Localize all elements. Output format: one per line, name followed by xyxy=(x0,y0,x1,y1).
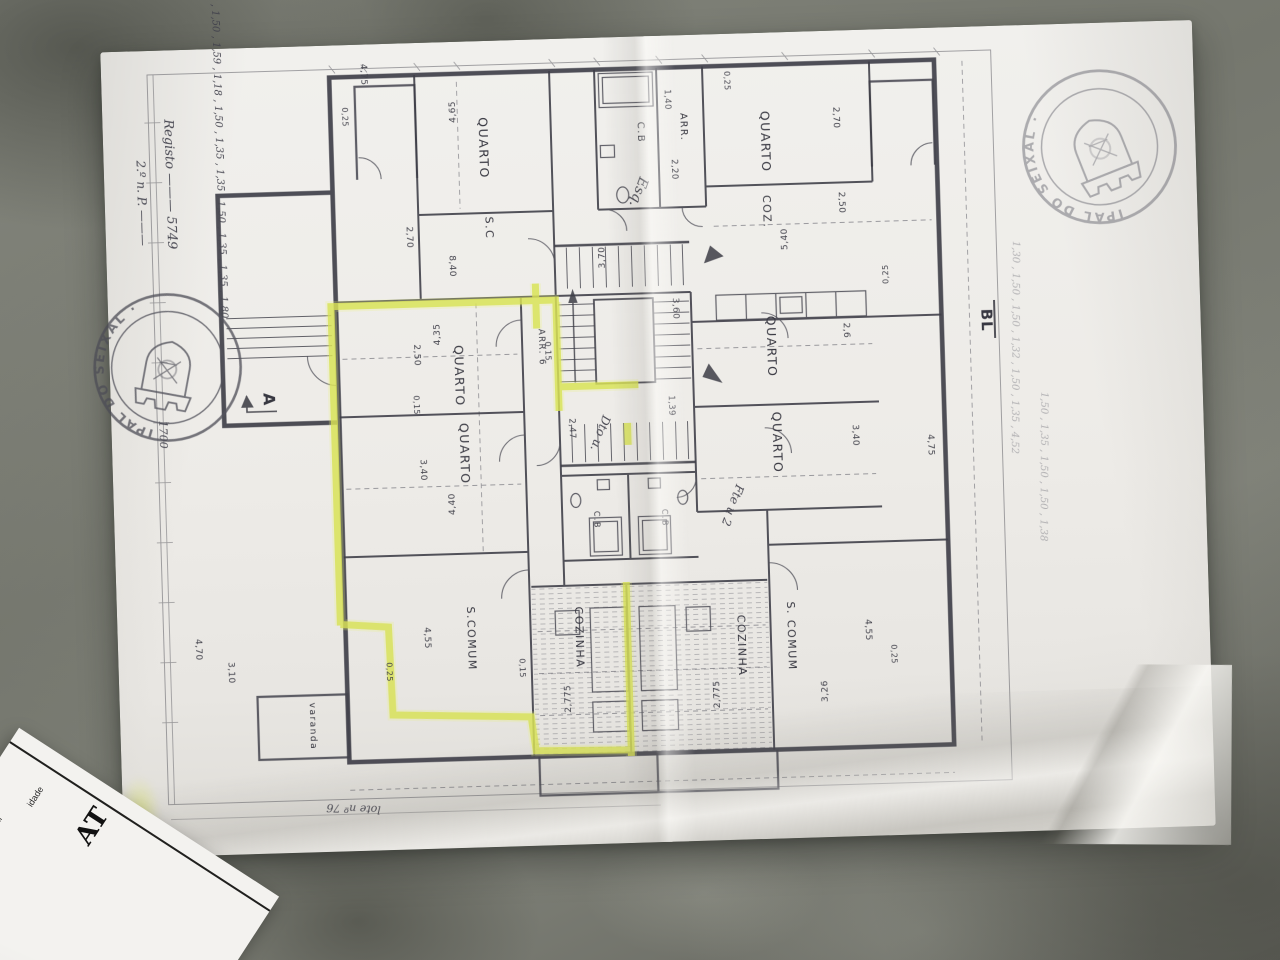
label-dim: 4,65 xyxy=(448,101,459,123)
door-arcs xyxy=(302,141,946,605)
label-dim: 0,25 xyxy=(340,107,350,127)
label-dim: 0,25 xyxy=(889,644,899,664)
label-marker: A xyxy=(259,393,278,407)
label-dim: 0,25 xyxy=(881,264,891,284)
label-room: C.B xyxy=(660,509,670,527)
label-dim: 4,40 xyxy=(448,493,459,515)
stair-direction-arrow xyxy=(567,246,726,387)
blueprint-paper: QUARTOS.CC.BARR.QUARTOCOZ.QUARTOQUARTOQU… xyxy=(100,20,1215,858)
label-hand: 1700 xyxy=(156,420,170,448)
label-dim: 3,40 xyxy=(850,424,861,446)
label-dim: 4,55 xyxy=(421,627,432,649)
label-room: varanda xyxy=(307,702,318,750)
municipal-crest-icon xyxy=(133,337,200,414)
label-room: C.B xyxy=(635,121,647,143)
label-hand: Esq. xyxy=(626,174,652,209)
label-dim: 2,47 xyxy=(566,418,577,439)
label-dim: 1,40 xyxy=(662,89,673,110)
label-dim: 2,50 xyxy=(836,192,847,214)
label-hand: Registo ——— 5749 xyxy=(160,118,179,249)
label-dim: 0,25 xyxy=(722,71,732,91)
label-room: COZINHA xyxy=(572,606,587,668)
label-hand: Dto u. xyxy=(588,412,614,453)
label-dim: 3,26 xyxy=(820,680,831,702)
floor-plan-drawing: QUARTOS.CC.BARR.QUARTOCOZ.QUARTOQUARTOQU… xyxy=(119,34,1156,846)
label-room: QUARTO xyxy=(763,315,780,377)
label-room: QUARTO xyxy=(769,411,786,473)
label-dim: 4,75 xyxy=(925,434,936,456)
label-dim: 2,6 xyxy=(841,322,851,338)
floor-background: QUARTOS.CC.BARR.QUARTOCOZ.QUARTOQUARTOQU… xyxy=(0,0,1280,960)
label-dim: 5,40 xyxy=(780,228,791,250)
label-room: QUARTO xyxy=(456,423,473,485)
corner-document-text-fragment: idade xyxy=(25,785,45,809)
label-dim: 0,15 xyxy=(543,341,553,361)
label-room: S. COMUM xyxy=(784,601,799,671)
label-dim: 3,60 xyxy=(670,297,681,319)
label-hand: lote nº 76 xyxy=(326,801,381,816)
label-dim: 0,25 xyxy=(385,662,395,682)
label-dim: 2,70 xyxy=(830,107,841,129)
label-room: COZ. xyxy=(760,195,774,229)
at-logo: AT xyxy=(69,802,115,850)
label-dim: 2,775 xyxy=(563,685,574,713)
label-room: S.C xyxy=(482,216,496,239)
label-dim: 4,75 xyxy=(358,64,369,86)
label-room: QUARTO xyxy=(451,345,468,407)
label-hand: — 2,00 , 1,70 , 1,50 , 1,59 , 1,18 , 1,5… xyxy=(207,0,229,319)
label-dim: 4,35 xyxy=(432,324,443,346)
label-room: S.COMUM xyxy=(464,606,479,671)
label-dim: 2,50 xyxy=(411,344,422,366)
label-dim: 3,40 xyxy=(417,459,428,481)
label-hand: Fte u 2 xyxy=(719,482,747,528)
stamp-circular-text: · CÂMARA MUNICIPAL DO SEIXAL · xyxy=(1005,90,1135,248)
label-dim: 4,70 xyxy=(193,639,204,661)
label-dim: 3,70 xyxy=(597,247,608,269)
corner-document-text-fragment: uaneir xyxy=(0,814,5,840)
label-room: C.B xyxy=(592,511,602,529)
label-pencil: 1,50 , 1,35 , 1,50 , 1,50 , 1,38 xyxy=(1038,392,1050,542)
label-room: QUARTO xyxy=(757,111,774,173)
label-dim: 4,55 xyxy=(862,619,873,641)
label-hand: 2.º n. P. ——— xyxy=(133,159,150,246)
label-dim: 2,20 xyxy=(669,159,680,180)
label-dim: 2,70 xyxy=(404,226,415,248)
label-dim: 2,775 xyxy=(712,680,723,708)
label-dim: 3,10 xyxy=(225,662,236,684)
label-dim: 1,39 xyxy=(666,395,677,416)
label-marker: BL xyxy=(977,308,996,332)
label-dim: 0,15 xyxy=(517,658,527,678)
municipal-crest-icon xyxy=(1061,110,1144,200)
municipal-stamp-right: · CÂMARA MUNICIPAL DO SEIXAL · xyxy=(999,48,1199,248)
label-dim: 8,40 xyxy=(446,255,457,277)
label-dim: 0,15 xyxy=(412,395,422,415)
label-pencil: 1,30 , 1,50 , 1,50 , 1,32 , 1,50 , 1,35 … xyxy=(1009,241,1021,454)
label-room: ARR. xyxy=(677,113,689,142)
label-room: COZINHA xyxy=(734,615,749,677)
label-room: QUARTO xyxy=(475,117,492,179)
